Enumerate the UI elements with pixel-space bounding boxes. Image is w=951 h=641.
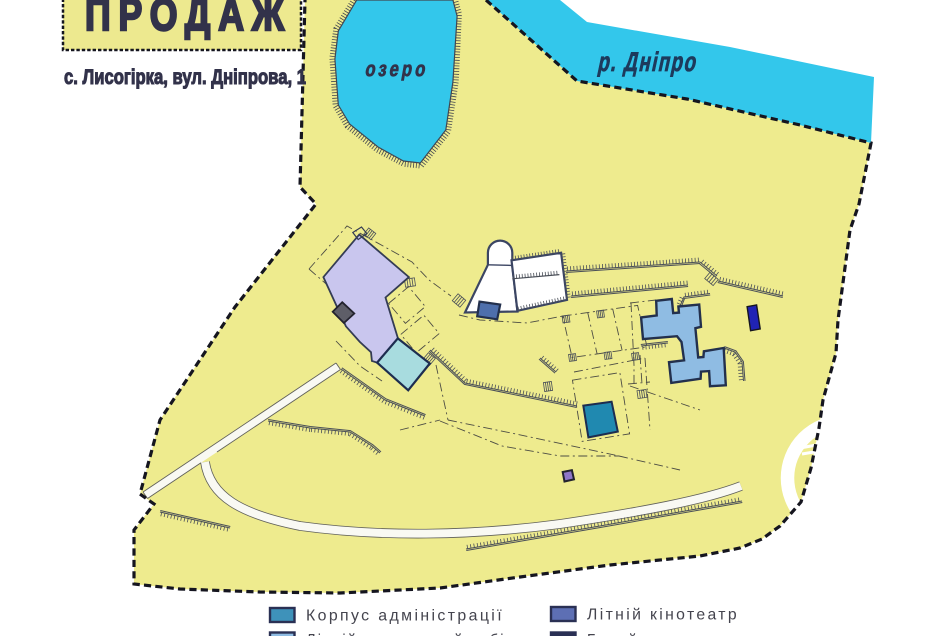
svg-text:Літній оздоровчий табір: Літній оздоровчий табір <box>306 632 516 636</box>
svg-text:с. Лисогірка, вул. Дніпрова, 1: с. Лисогірка, вул. Дніпрова, 1 <box>64 65 306 89</box>
svg-text:Басейн: Басейн <box>587 632 649 636</box>
svg-text:р. Дніпро: р. Дніпро <box>596 46 702 77</box>
svg-text:озеро: озеро <box>364 58 431 81</box>
svg-text:Літній кінотеатр: Літній кінотеатр <box>587 607 739 624</box>
svg-text:ПРОДАЖ: ПРОДАЖ <box>85 0 292 40</box>
svg-text:Корпус адміністрації: Корпус адміністрації <box>306 608 504 625</box>
